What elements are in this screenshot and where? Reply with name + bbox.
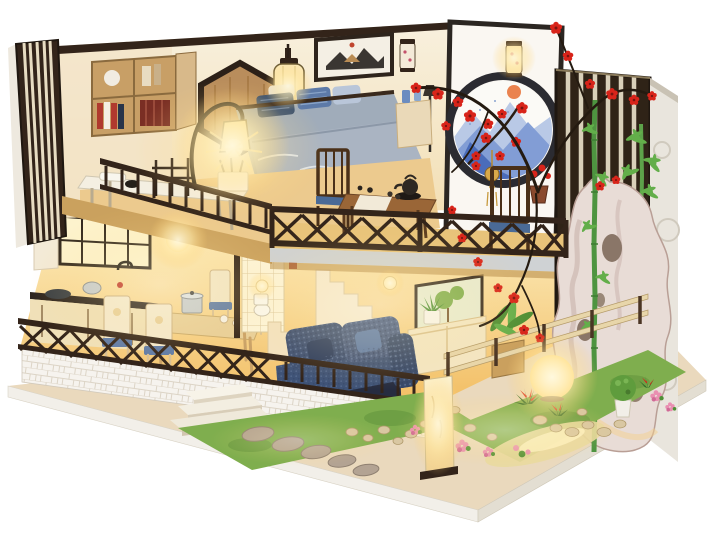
bedroom-art xyxy=(316,34,392,80)
wall-lantern-left xyxy=(400,39,415,72)
globe-lamp-glow xyxy=(506,331,598,423)
slat-panel-left xyxy=(8,40,66,248)
dollhouse-product-photo xyxy=(0,0,720,533)
desk-lamp-glow xyxy=(174,88,290,204)
decor-sphere xyxy=(104,70,120,86)
dollhouse-scene xyxy=(0,0,720,533)
